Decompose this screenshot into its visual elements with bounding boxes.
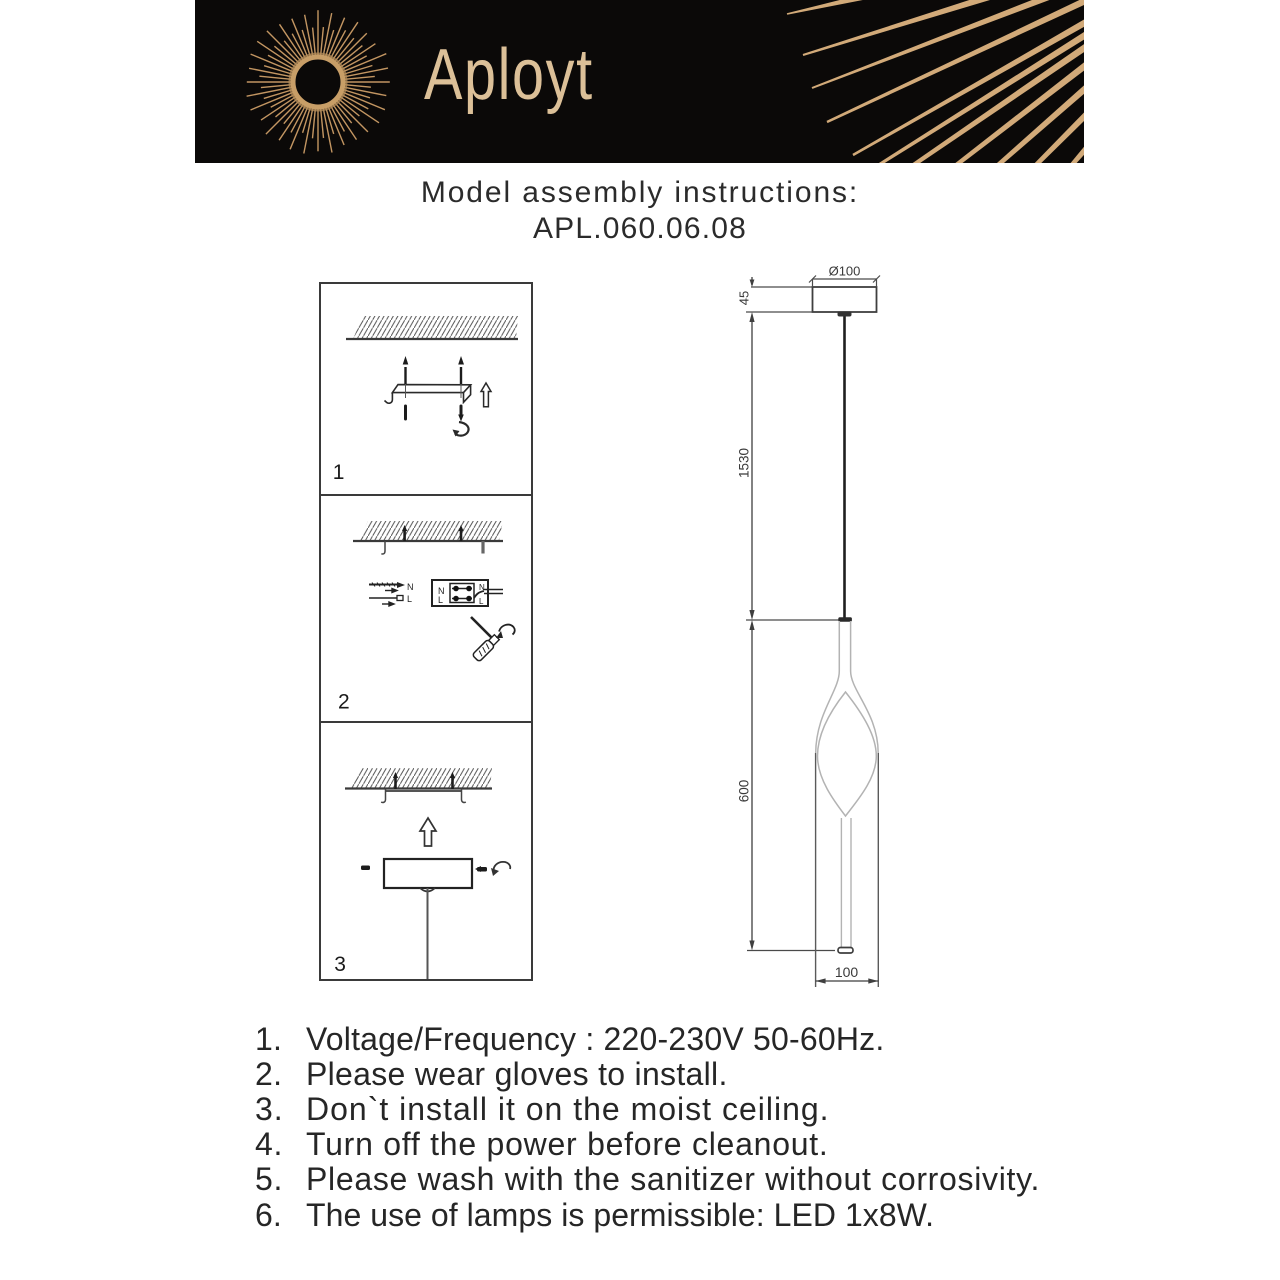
svg-text:1: 1	[333, 461, 345, 484]
svg-text:L: L	[479, 597, 484, 606]
svg-text:3: 3	[334, 953, 346, 976]
svg-text:2: 2	[338, 691, 350, 714]
svg-text:L: L	[438, 595, 443, 605]
svg-text:L: L	[407, 594, 412, 604]
svg-text:N: N	[407, 582, 414, 592]
svg-text:100: 100	[835, 964, 859, 980]
svg-text:1530: 1530	[737, 448, 752, 478]
svg-text:600: 600	[737, 780, 752, 803]
svg-text:45: 45	[737, 291, 752, 305]
svg-text:Ø100: Ø100	[829, 264, 861, 279]
